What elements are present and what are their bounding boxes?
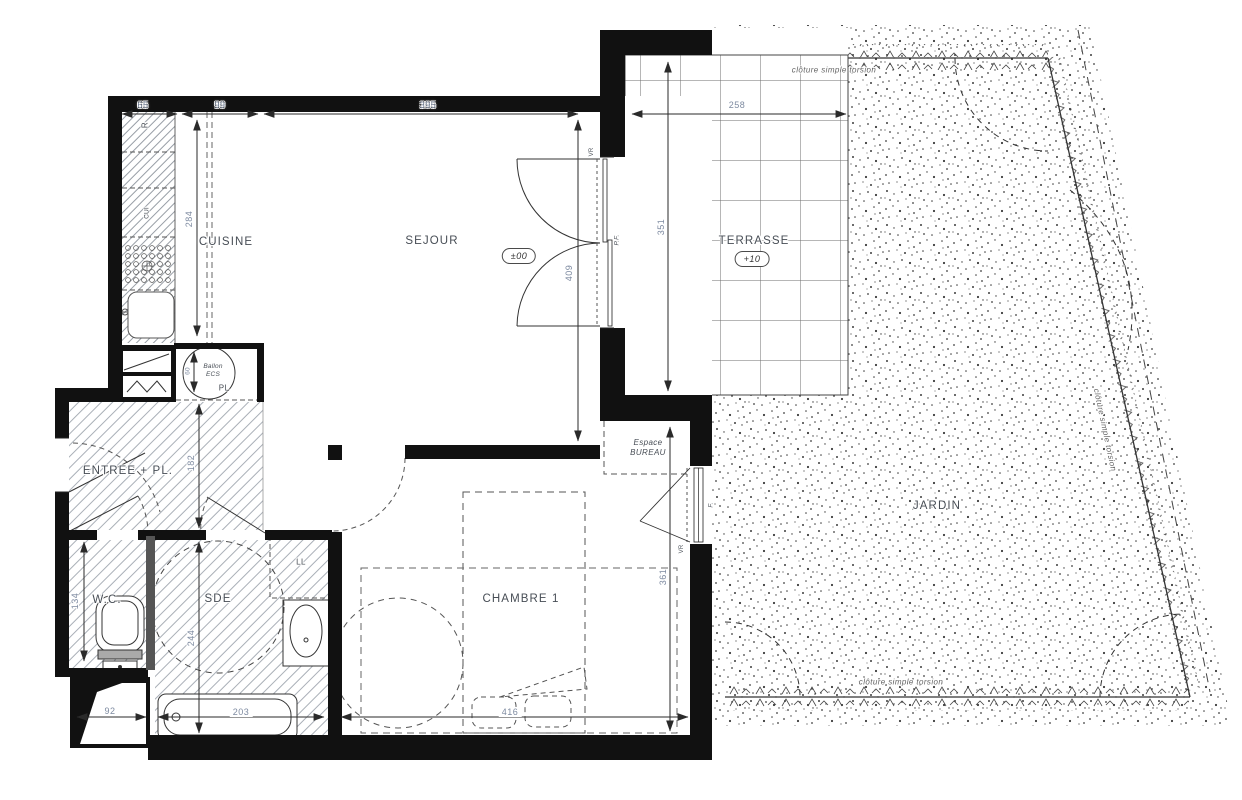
- fence-label-top: clôture simple torsion: [792, 66, 876, 75]
- dim-label-182: 182: [186, 455, 196, 472]
- dim-label-361: 361: [658, 569, 668, 586]
- room-label-jardin: JARDIN: [913, 500, 961, 512]
- dim-label-284: 284: [184, 211, 194, 228]
- wc-sde-partition: [146, 536, 155, 670]
- room-label-sejour: SEJOUR: [405, 235, 458, 247]
- floorplan-page: 65 99 395 258 284 409 351 361 416 182 24…: [0, 0, 1242, 800]
- dim-label-244: 244: [186, 630, 196, 647]
- fixture-label-lave-linge: LL: [296, 558, 306, 567]
- level-badge-terrasse: +10: [735, 251, 770, 267]
- dim-label-134: 134: [70, 593, 80, 610]
- dim-label-203: 203: [230, 707, 253, 717]
- fixture-label-cuisson: CUI: [144, 207, 151, 219]
- level-badge-sejour: ±00: [502, 248, 536, 264]
- dim-label-351: 351: [656, 219, 666, 236]
- porte-fenetre: [597, 157, 625, 328]
- room-label-wc: W.C.: [92, 594, 121, 606]
- washbasin: [283, 600, 329, 666]
- dim-label-416: 416: [499, 707, 522, 717]
- dim-label-92: 92: [101, 706, 118, 716]
- dim-label-409: 409: [564, 265, 574, 282]
- fixture-label-ballon-ecs: Ballon ECS: [203, 363, 222, 379]
- opening-label-pf: P.F.: [614, 234, 621, 245]
- room-label-entree: ENTREE + PL.: [83, 465, 173, 477]
- dim-label-395: 395: [420, 100, 437, 110]
- room-label-chambre: CHAMBRE 1: [483, 593, 560, 605]
- dim-label-65: 65: [137, 100, 148, 110]
- room-label-cuisine: CUISINE: [199, 236, 253, 248]
- dim-label-99: 99: [214, 100, 225, 110]
- fence-label-bottom: clôture simple torsion: [859, 678, 943, 687]
- dim-label-60: 60: [185, 367, 192, 375]
- fixture-label-refrigerateur: R: [141, 122, 150, 128]
- opening-label-f: F.: [708, 502, 715, 507]
- room-label-espace-bureau: Espace BUREAU: [630, 438, 666, 458]
- room-label-sde: SDE: [205, 593, 232, 605]
- toilet: [96, 596, 144, 674]
- floorplan-drawing: [0, 0, 1242, 800]
- fixture-label-placard: PL: [219, 384, 230, 393]
- room-label-terrasse: TERRASSE: [719, 235, 790, 247]
- dim-label-258: 258: [729, 100, 746, 110]
- opening-label-vr-sejour: VR: [589, 148, 595, 157]
- opening-label-vr-chambre: VR: [679, 545, 685, 554]
